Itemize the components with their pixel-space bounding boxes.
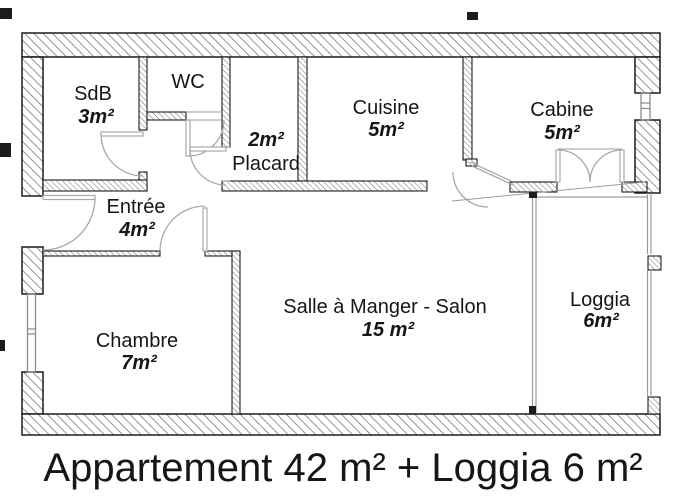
entrance-door-leaf (43, 196, 95, 200)
room-label-entree: Entrée (107, 196, 166, 218)
loggia-pier-corner (648, 397, 660, 414)
wall-outer-right-upper (635, 57, 660, 93)
loggia-glazing-tick-top (529, 192, 537, 198)
wall-sdb-wc-divider (139, 57, 147, 130)
chambre-door-leaf (203, 208, 207, 251)
room-area-entree: 4m² (118, 219, 156, 241)
wall-outer-left-upper (22, 57, 43, 196)
wall-placard-left (222, 57, 230, 147)
floor-plan-page: SdB 3m² WC 2m² Placard Cuisine 5m² Cabin… (0, 0, 700, 500)
room-label-chambre: Chambre (96, 330, 178, 352)
wall-chambre-top-left (43, 251, 160, 256)
wall-chambre-right (232, 251, 240, 414)
room-label-placard: Placard (232, 153, 300, 175)
room-area-loggia: 6m² (583, 310, 620, 332)
loggia-pier-mid (648, 256, 661, 270)
wall-outer-left-mid (22, 247, 43, 294)
room-area-chambre: 7m² (121, 352, 158, 374)
plan-caption: Appartement 42 m² + Loggia 6 m² (43, 446, 642, 490)
wall-cuisine-cabine-divider (463, 57, 472, 160)
room-label-cabine: Cabine (530, 99, 593, 121)
room-label-salon: Salle à Manger - Salon (283, 296, 486, 318)
room-area-cuisine: 5m² (368, 119, 405, 141)
room-label-loggia: Loggia (570, 289, 631, 311)
wall-outer-left-lower (22, 372, 43, 414)
wall-outer-top (22, 33, 660, 57)
wall-salon-top (222, 181, 427, 191)
room-area-cabine: 5m² (544, 122, 581, 144)
edge-tick (0, 143, 11, 157)
wall-outer-bottom (22, 414, 660, 435)
room-label-cuisine: Cuisine (353, 97, 420, 119)
wall-entree-top-left (43, 180, 147, 191)
cabine-double-door-left-leaf (556, 150, 560, 182)
room-label-sdb: SdB (74, 83, 112, 105)
cabine-double-door-right-leaf (620, 150, 624, 182)
room-label-wc: WC (171, 71, 204, 93)
wall-cabine-bottom-left (510, 182, 557, 192)
edge-tick (467, 12, 478, 20)
edge-tick (0, 8, 12, 19)
edge-tick (0, 340, 5, 351)
placard-door-leaf (190, 147, 226, 151)
loggia-glazing-tick-bottom (529, 406, 536, 414)
room-area-salon: 15 m² (362, 319, 416, 341)
sdb-door-leaf (101, 132, 143, 136)
wall-wc-bottom (147, 112, 186, 120)
floor-plan: SdB 3m² WC 2m² Placard Cuisine 5m² Cabin… (0, 0, 700, 500)
room-area-sdb: 3m² (78, 106, 115, 128)
room-area-placard: 2m² (247, 129, 285, 151)
